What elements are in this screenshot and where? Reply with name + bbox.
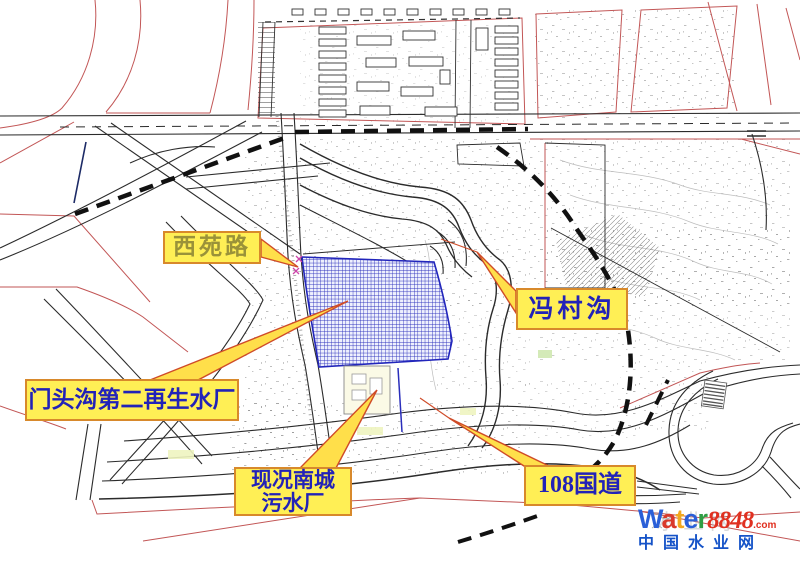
crosswalk-symbol xyxy=(701,380,726,409)
watermark-subtitle: 中国水业网 xyxy=(638,536,800,552)
callout-mentougou-plant: 门头沟第二再生水厂 xyxy=(25,379,239,421)
site-plan-map: 西苑路 门头沟第二再生水厂 现况南城 污水厂 冯村沟 108国道 水业网 Wat… xyxy=(0,0,800,567)
watermark-line1: Water8848.com xyxy=(638,506,800,533)
watermark-letter: r xyxy=(698,504,708,534)
watermark: 水业网 Water8848.com 中国水业网 xyxy=(638,506,800,566)
callout-g108: 108国道 xyxy=(524,465,636,506)
watermark-letter: e xyxy=(684,504,698,534)
watermark-letter: W xyxy=(638,504,661,534)
watermark-word: Water xyxy=(638,515,707,532)
callout-xiyuan-road: 西苑路 xyxy=(163,231,261,264)
watermark-letter: t xyxy=(676,504,684,534)
watermark-tld: .com xyxy=(753,520,776,531)
map-drawing xyxy=(0,0,800,567)
callout-nancheng-plant: 现况南城 污水厂 xyxy=(234,467,352,516)
callout-fengcun-gou: 冯村沟 xyxy=(516,288,628,330)
watermark-letter: a xyxy=(661,504,675,534)
watermark-number: 8848 xyxy=(707,507,753,534)
